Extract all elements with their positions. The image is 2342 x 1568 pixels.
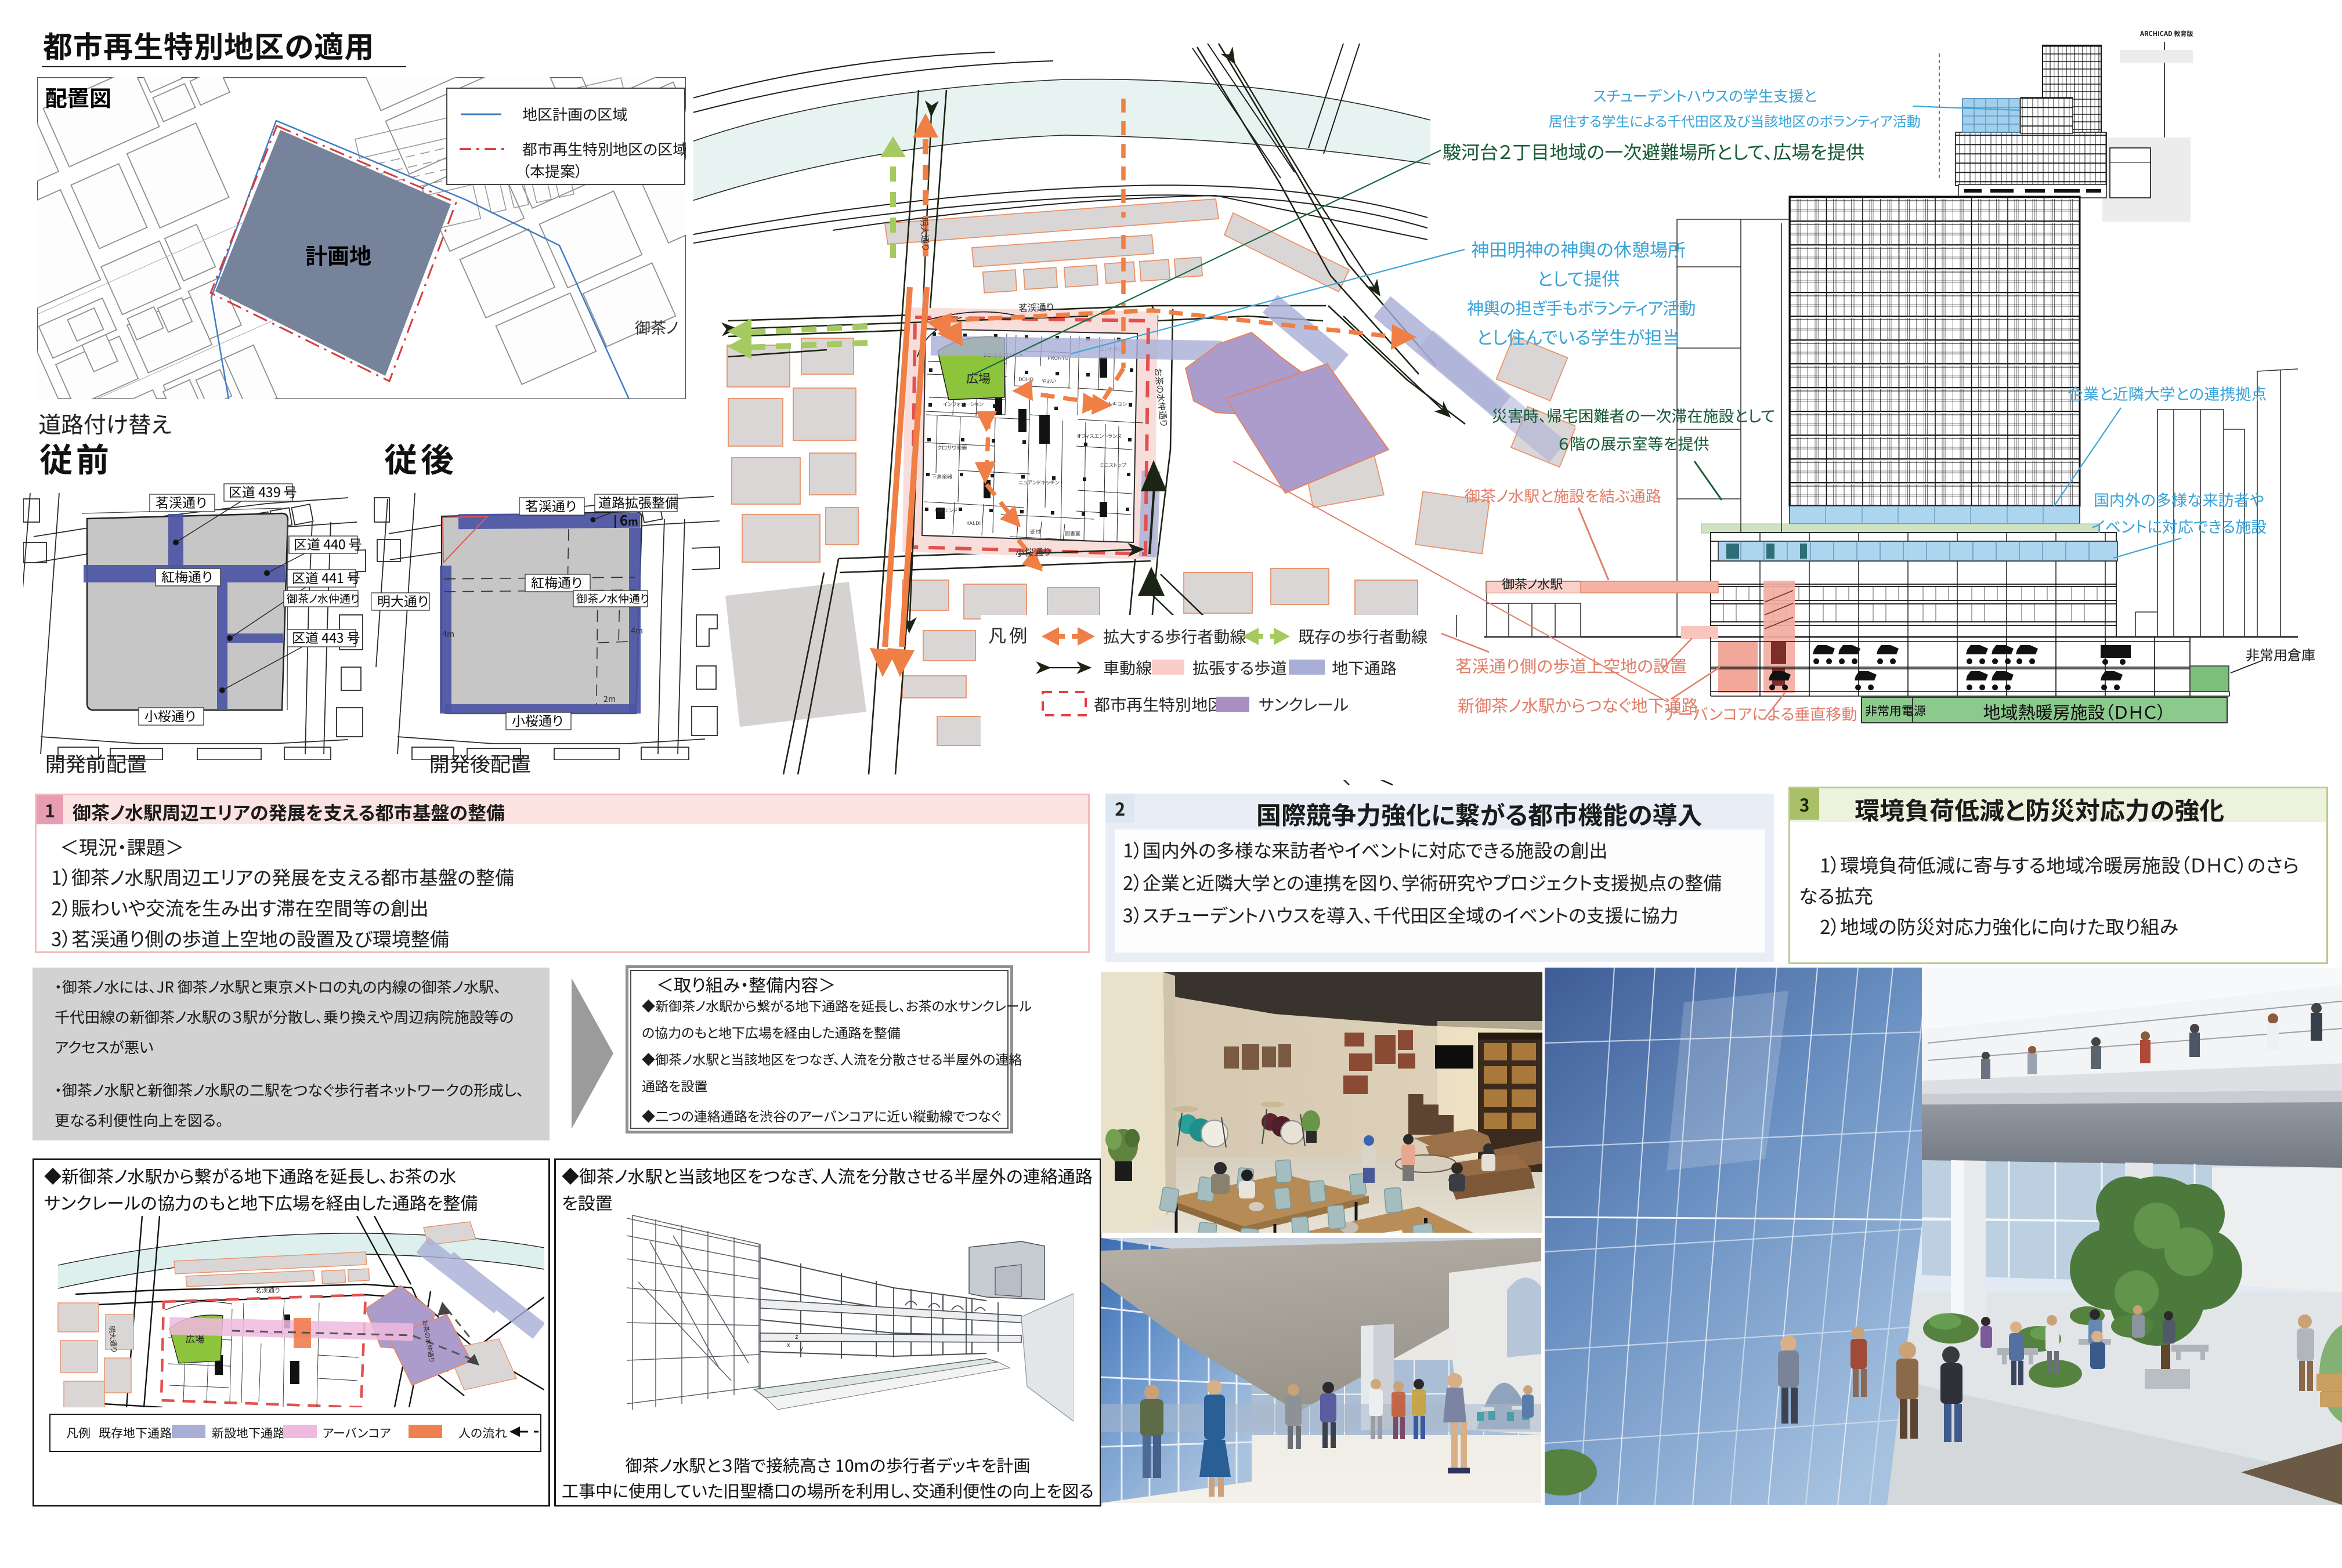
svg-text:茗渓通り: 茗渓通り [255, 1285, 280, 1295]
svg-text:z: z [795, 1332, 798, 1341]
svg-text:y: y [800, 1344, 803, 1353]
svg-text:x: x [787, 1340, 790, 1349]
